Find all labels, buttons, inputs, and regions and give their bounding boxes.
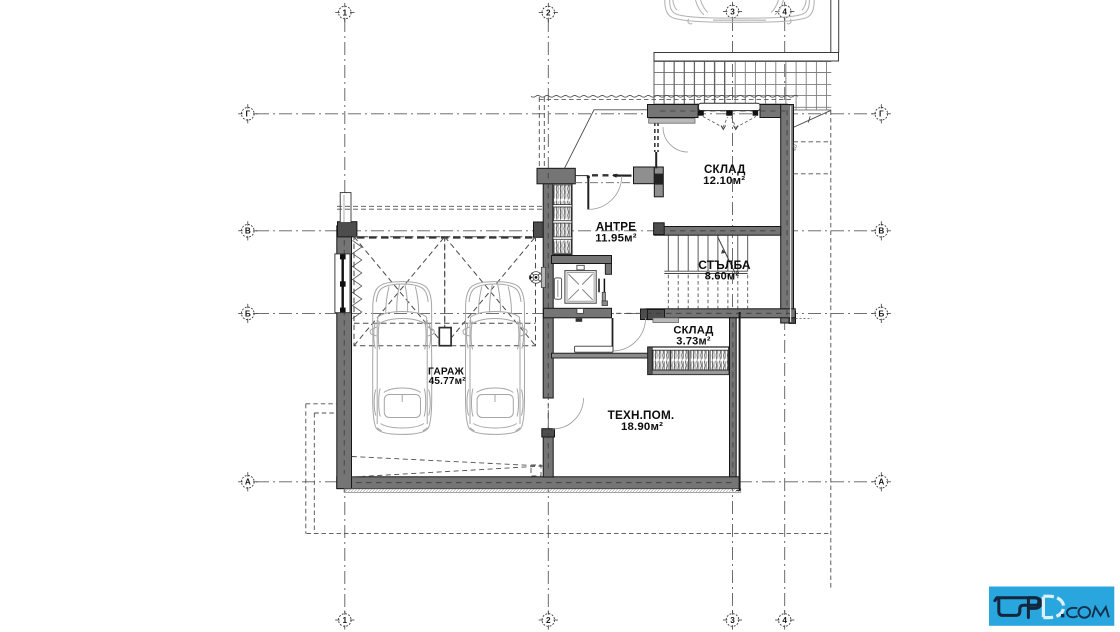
svg-text:4: 4 xyxy=(782,7,787,16)
svg-text:В: В xyxy=(245,227,251,236)
svg-text:2: 2 xyxy=(546,616,551,625)
svg-text:3.73м²: 3.73м² xyxy=(676,335,711,347)
svg-text:11.95м²: 11.95м² xyxy=(595,232,637,244)
svg-text:3: 3 xyxy=(730,7,735,16)
svg-text:1: 1 xyxy=(343,8,348,17)
svg-text:4: 4 xyxy=(782,616,787,625)
svg-text:Б: Б xyxy=(245,309,251,318)
svg-text:Г: Г xyxy=(879,110,884,119)
svg-text:А: А xyxy=(245,478,251,487)
svg-text:В: В xyxy=(878,227,884,236)
svg-text:1: 1 xyxy=(343,616,348,625)
svg-text:Б: Б xyxy=(878,309,884,318)
svg-text:12.10м²: 12.10м² xyxy=(703,175,745,187)
svg-text:А: А xyxy=(878,478,884,487)
svg-text:3: 3 xyxy=(730,616,735,625)
svg-text:8.60м²: 8.60м² xyxy=(705,270,740,282)
svg-text:18.90м²: 18.90м² xyxy=(621,421,663,433)
svg-text:Г: Г xyxy=(245,110,250,119)
svg-text:45.77м²: 45.77м² xyxy=(429,376,467,387)
svg-text:2: 2 xyxy=(546,8,551,17)
